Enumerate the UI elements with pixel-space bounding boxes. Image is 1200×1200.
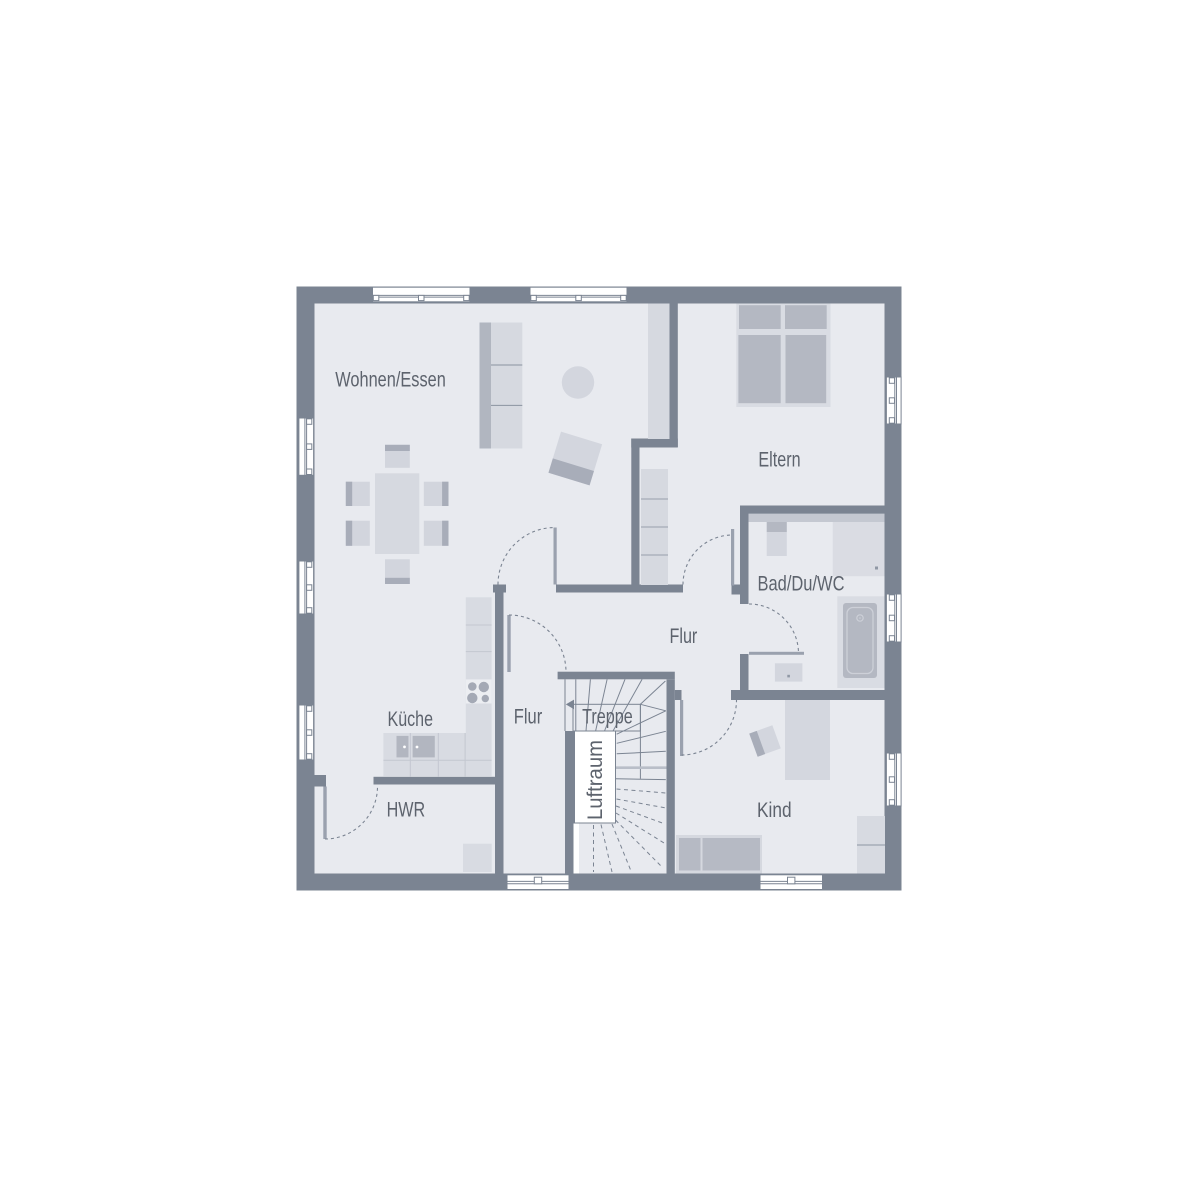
svg-text:HWR: HWR: [387, 798, 426, 822]
svg-text:Flur: Flur: [670, 624, 698, 648]
svg-text:Bad/Du/WC: Bad/Du/WC: [758, 572, 845, 596]
svg-text:Luftraum: Luftraum: [583, 740, 607, 820]
svg-text:Wohnen/Essen: Wohnen/Essen: [335, 368, 446, 392]
svg-text:Flur: Flur: [514, 705, 542, 729]
svg-text:Treppe: Treppe: [582, 705, 633, 729]
svg-text:Küche: Küche: [388, 707, 434, 731]
svg-text:Eltern: Eltern: [758, 448, 800, 472]
svg-text:Kind: Kind: [757, 798, 792, 822]
